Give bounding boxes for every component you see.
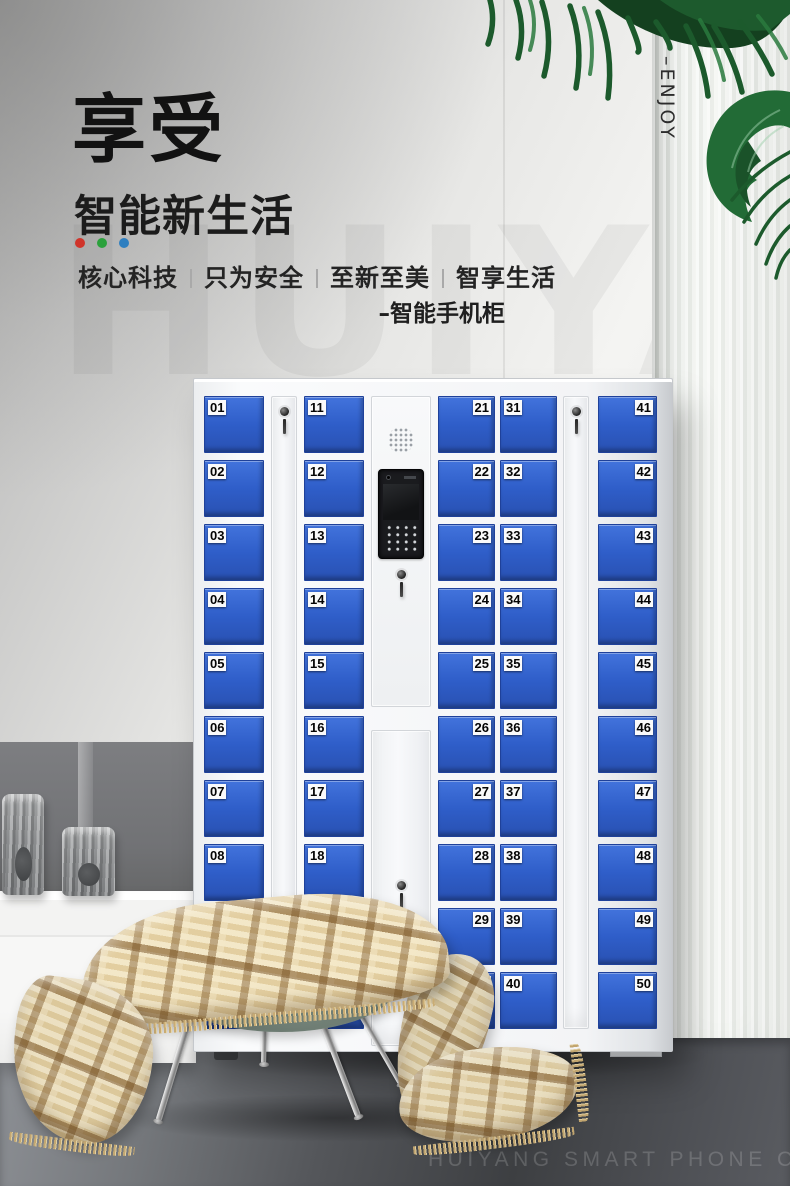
palm-leaves-decoration xyxy=(480,0,790,282)
door-number-label: 15 xyxy=(308,656,326,671)
locker-column-21-30: 21222324252627282930 xyxy=(438,396,495,1036)
hanging-key-icon xyxy=(575,419,578,434)
door-number-label: 37 xyxy=(504,784,522,799)
keypad-icon xyxy=(384,523,418,552)
door-number-label: 33 xyxy=(504,528,522,543)
locker-door: 31 xyxy=(500,396,557,453)
locker-door: 38 xyxy=(500,844,557,901)
hanging-key-icon xyxy=(400,582,403,597)
speaker-grille-icon xyxy=(388,427,414,453)
key-lock-icon xyxy=(280,407,289,416)
door-number-label: 48 xyxy=(635,848,653,863)
door-number-label: 03 xyxy=(208,528,226,543)
door-number-label: 05 xyxy=(208,656,226,671)
locker-door: 14 xyxy=(304,588,364,645)
indicator-slot-icon xyxy=(404,476,416,479)
locker-door: 44 xyxy=(598,588,657,645)
locker-door: 05 xyxy=(204,652,264,709)
locker-door: 46 xyxy=(598,716,657,773)
door-number-label: 35 xyxy=(504,656,522,671)
door-number-label: 22 xyxy=(473,464,491,479)
intercom-panel xyxy=(378,469,424,559)
locker-door: 26 xyxy=(438,716,495,773)
locker-door: 04 xyxy=(204,588,264,645)
locker-door: 03 xyxy=(204,524,264,581)
door-number-label: 32 xyxy=(504,464,522,479)
headline-main: 享受 xyxy=(72,92,226,170)
locker-door: 08 xyxy=(204,844,264,901)
locker-door: 42 xyxy=(598,460,657,517)
door-number-label: 50 xyxy=(635,976,653,991)
door-number-label: 31 xyxy=(504,400,522,415)
locker-door: 36 xyxy=(500,716,557,773)
locker-door: 40 xyxy=(500,972,557,1029)
door-number-label: 02 xyxy=(208,464,226,479)
locker-door: 07 xyxy=(204,780,264,837)
locker-door: 23 xyxy=(438,524,495,581)
accent-dot xyxy=(75,238,85,248)
locker-door: 48 xyxy=(598,844,657,901)
hanging-key-icon xyxy=(283,419,286,434)
door-number-label: 08 xyxy=(208,848,226,863)
locker-door: 43 xyxy=(598,524,657,581)
locker-door: 25 xyxy=(438,652,495,709)
door-number-label: 34 xyxy=(504,592,522,607)
door-number-label: 42 xyxy=(635,464,653,479)
tagline-item: 核心科技 xyxy=(78,258,178,293)
vase-opening xyxy=(78,863,100,886)
vase-opening xyxy=(15,847,33,881)
door-number-label: 18 xyxy=(308,848,326,863)
headline-sub: 智能新生活 xyxy=(74,182,294,244)
key-lock-icon xyxy=(572,407,581,416)
door-number-label: 13 xyxy=(308,528,326,543)
door-number-label: 24 xyxy=(473,592,491,607)
door-number-label: 14 xyxy=(308,592,326,607)
door-number-label: 46 xyxy=(635,720,653,735)
door-number-label: 40 xyxy=(504,976,522,991)
key-lock-icon xyxy=(397,881,406,890)
locker-door: 27 xyxy=(438,780,495,837)
control-column xyxy=(371,396,431,707)
door-number-label: 47 xyxy=(635,784,653,799)
locker-column-41-50: 41424344454647484950 xyxy=(598,396,657,1036)
locker-door: 21 xyxy=(438,396,495,453)
door-number-label: 41 xyxy=(635,400,653,415)
locker-door: 11 xyxy=(304,396,364,453)
decor-vase xyxy=(62,827,115,896)
door-number-label: 07 xyxy=(208,784,226,799)
locker-door: 45 xyxy=(598,652,657,709)
door-number-label: 45 xyxy=(635,656,653,671)
locker-door: 02 xyxy=(204,460,264,517)
door-number-label: 21 xyxy=(473,400,491,415)
locker-door: 12 xyxy=(304,460,364,517)
product-poster: HUIYANG HUIYANG SMART PHONE CABINET 0102… xyxy=(0,0,790,1186)
locker-door: 32 xyxy=(500,460,557,517)
locker-door: 18 xyxy=(304,844,364,901)
door-number-label: 04 xyxy=(208,592,226,607)
locker-door: 17 xyxy=(304,780,364,837)
accent-dots xyxy=(75,238,129,248)
side-lock-column xyxy=(563,396,589,1029)
locker-door: 50 xyxy=(598,972,657,1029)
locker-door: 47 xyxy=(598,780,657,837)
tagline-item: 至新至美 xyxy=(304,258,430,293)
locker-door: 28 xyxy=(438,844,495,901)
locker-door: 41 xyxy=(598,396,657,453)
locker-column-31-40: 31323334353637383940 xyxy=(500,396,557,1036)
locker-door: 16 xyxy=(304,716,364,773)
door-number-label: 23 xyxy=(473,528,491,543)
tagline-item: 只为安全 xyxy=(178,258,304,293)
door-number-label: 44 xyxy=(635,592,653,607)
door-number-label: 39 xyxy=(504,912,522,927)
door-number-label: 16 xyxy=(308,720,326,735)
locker-door: 13 xyxy=(304,524,364,581)
locker-door: 37 xyxy=(500,780,557,837)
door-number-label: 17 xyxy=(308,784,326,799)
door-number-label: 12 xyxy=(308,464,326,479)
door-number-label: 25 xyxy=(473,656,491,671)
door-number-label: 28 xyxy=(473,848,491,863)
door-number-label: 27 xyxy=(473,784,491,799)
accent-dot xyxy=(97,238,107,248)
door-number-label: 36 xyxy=(504,720,522,735)
door-number-label: 29 xyxy=(473,912,491,927)
floor-watermark: HUIYANG SMART PHONE CABINET xyxy=(428,1148,790,1172)
locker-door: 33 xyxy=(500,524,557,581)
control-panel-door xyxy=(371,396,431,707)
door-number-label: 43 xyxy=(635,528,653,543)
product-label: –智能手机柜 xyxy=(78,294,505,328)
camera-icon xyxy=(386,475,391,480)
door-number-label: 01 xyxy=(208,400,226,415)
locker-door: 15 xyxy=(304,652,364,709)
door-number-label: 06 xyxy=(208,720,226,735)
locker-door: 01 xyxy=(204,396,264,453)
locker-door: 24 xyxy=(438,588,495,645)
locker-door: 39 xyxy=(500,908,557,965)
side-lock-door xyxy=(563,396,589,1029)
door-number-label: 49 xyxy=(635,912,653,927)
locker-door: 49 xyxy=(598,908,657,965)
locker-door: 22 xyxy=(438,460,495,517)
locker-door: 34 xyxy=(500,588,557,645)
locker-door: 35 xyxy=(500,652,557,709)
locker-door: 06 xyxy=(204,716,264,773)
display-screen xyxy=(383,484,419,520)
door-number-label: 26 xyxy=(473,720,491,735)
decor-vase xyxy=(2,794,44,895)
key-lock-icon xyxy=(397,570,406,579)
door-number-label: 11 xyxy=(308,400,326,415)
door-number-label: 38 xyxy=(504,848,522,863)
accent-dot xyxy=(119,238,129,248)
